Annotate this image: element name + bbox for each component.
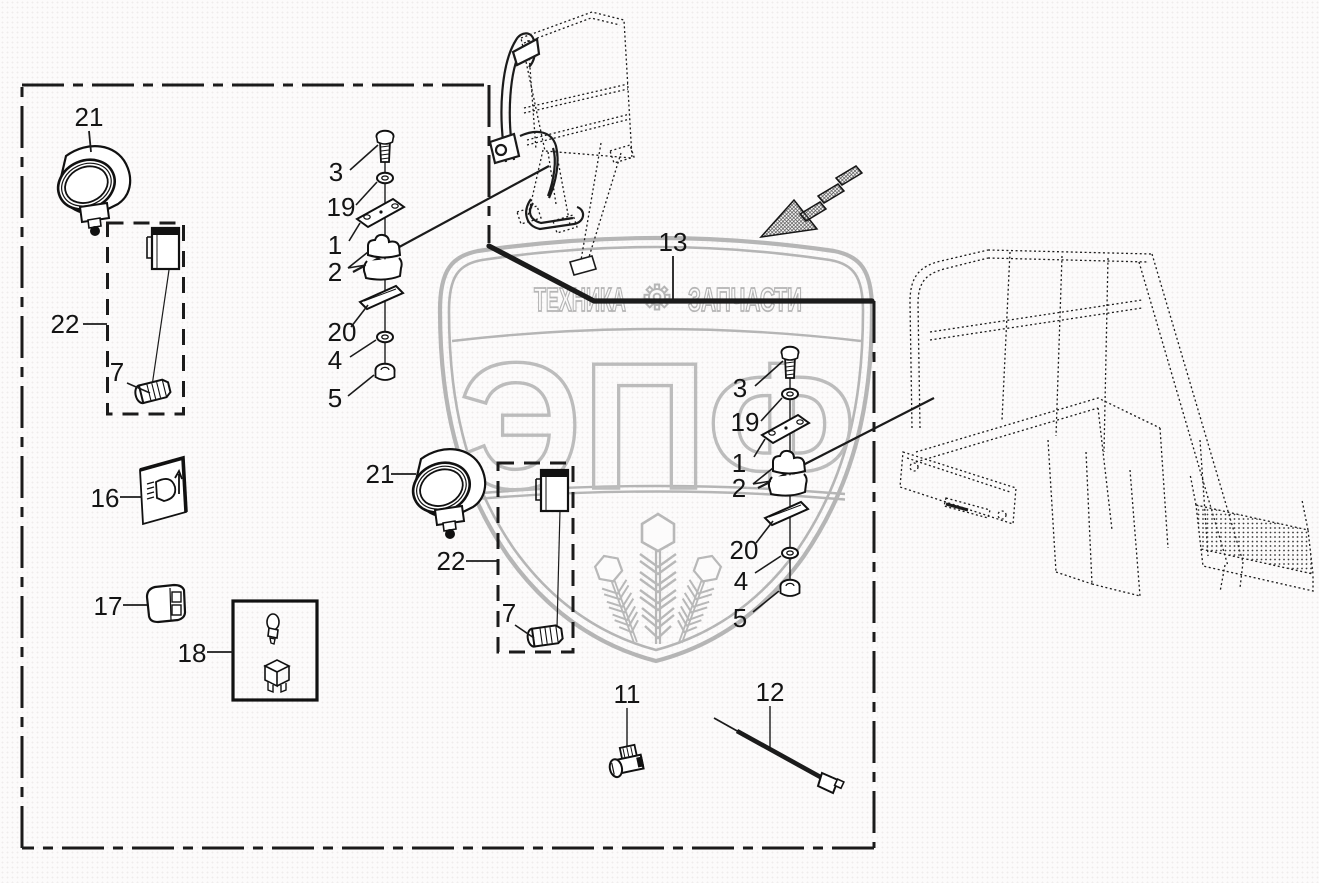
callout-2-right: 2: [732, 473, 746, 503]
callout-19-left: 19: [327, 192, 356, 222]
callout-11: 11: [614, 679, 641, 709]
callout-21-top: 21: [75, 102, 104, 132]
callout-4-right: 4: [734, 566, 748, 596]
gear-icon: [645, 285, 670, 310]
callout-19-right: 19: [731, 407, 760, 437]
callout-7-left: 7: [110, 357, 124, 387]
bulb-icon: [267, 614, 279, 644]
headlight-icon: [156, 479, 175, 501]
callout-5-left: 5: [328, 383, 342, 413]
callout-3-left: 3: [329, 157, 343, 187]
direction-arrow-icon: [761, 166, 862, 237]
cable-tie-12: [714, 706, 844, 793]
callout-7-centre: 7: [502, 598, 516, 628]
spares-box-18: [207, 601, 317, 700]
decal-16: [120, 458, 186, 524]
callout-17: 17: [94, 591, 123, 621]
callout-21-centre: 21: [366, 459, 395, 489]
callout-1-left: 1: [328, 230, 342, 260]
callout-20-right: 20: [730, 535, 759, 565]
clip-11: [606, 708, 645, 778]
wheat-icon: [592, 514, 724, 647]
callout-22-left: 22: [51, 309, 80, 339]
flasher-unit: [147, 228, 179, 269]
callout-2-left: 2: [328, 257, 342, 287]
grouping-box-22-left: [83, 223, 184, 414]
connector-7-left: [134, 379, 172, 405]
hardware-stack-left: [348, 131, 404, 396]
mini-relay-icon: [265, 660, 289, 692]
callout-4-left: 4: [328, 345, 342, 375]
parts-diagram-image: ТЕХНИКА ЗАПЧАСТИ ЭПФ: [0, 0, 1319, 883]
callout-3-right: 3: [733, 373, 747, 403]
callout-12: 12: [756, 677, 785, 707]
callout-20-left: 20: [328, 317, 357, 347]
callout-22-centre: 22: [437, 546, 466, 576]
callout-5-right: 5: [733, 603, 747, 633]
handrail-assembly: [490, 12, 634, 275]
relay-17: [123, 585, 185, 622]
platform-assembly: [900, 250, 1313, 596]
parts-diagram-svg: ТЕХНИКА ЗАПЧАСТИ ЭПФ: [0, 0, 1319, 883]
flasher-unit: [536, 470, 568, 511]
callout-18: 18: [178, 638, 207, 668]
callout-16: 16: [91, 483, 120, 513]
callout-13: 13: [659, 227, 688, 257]
